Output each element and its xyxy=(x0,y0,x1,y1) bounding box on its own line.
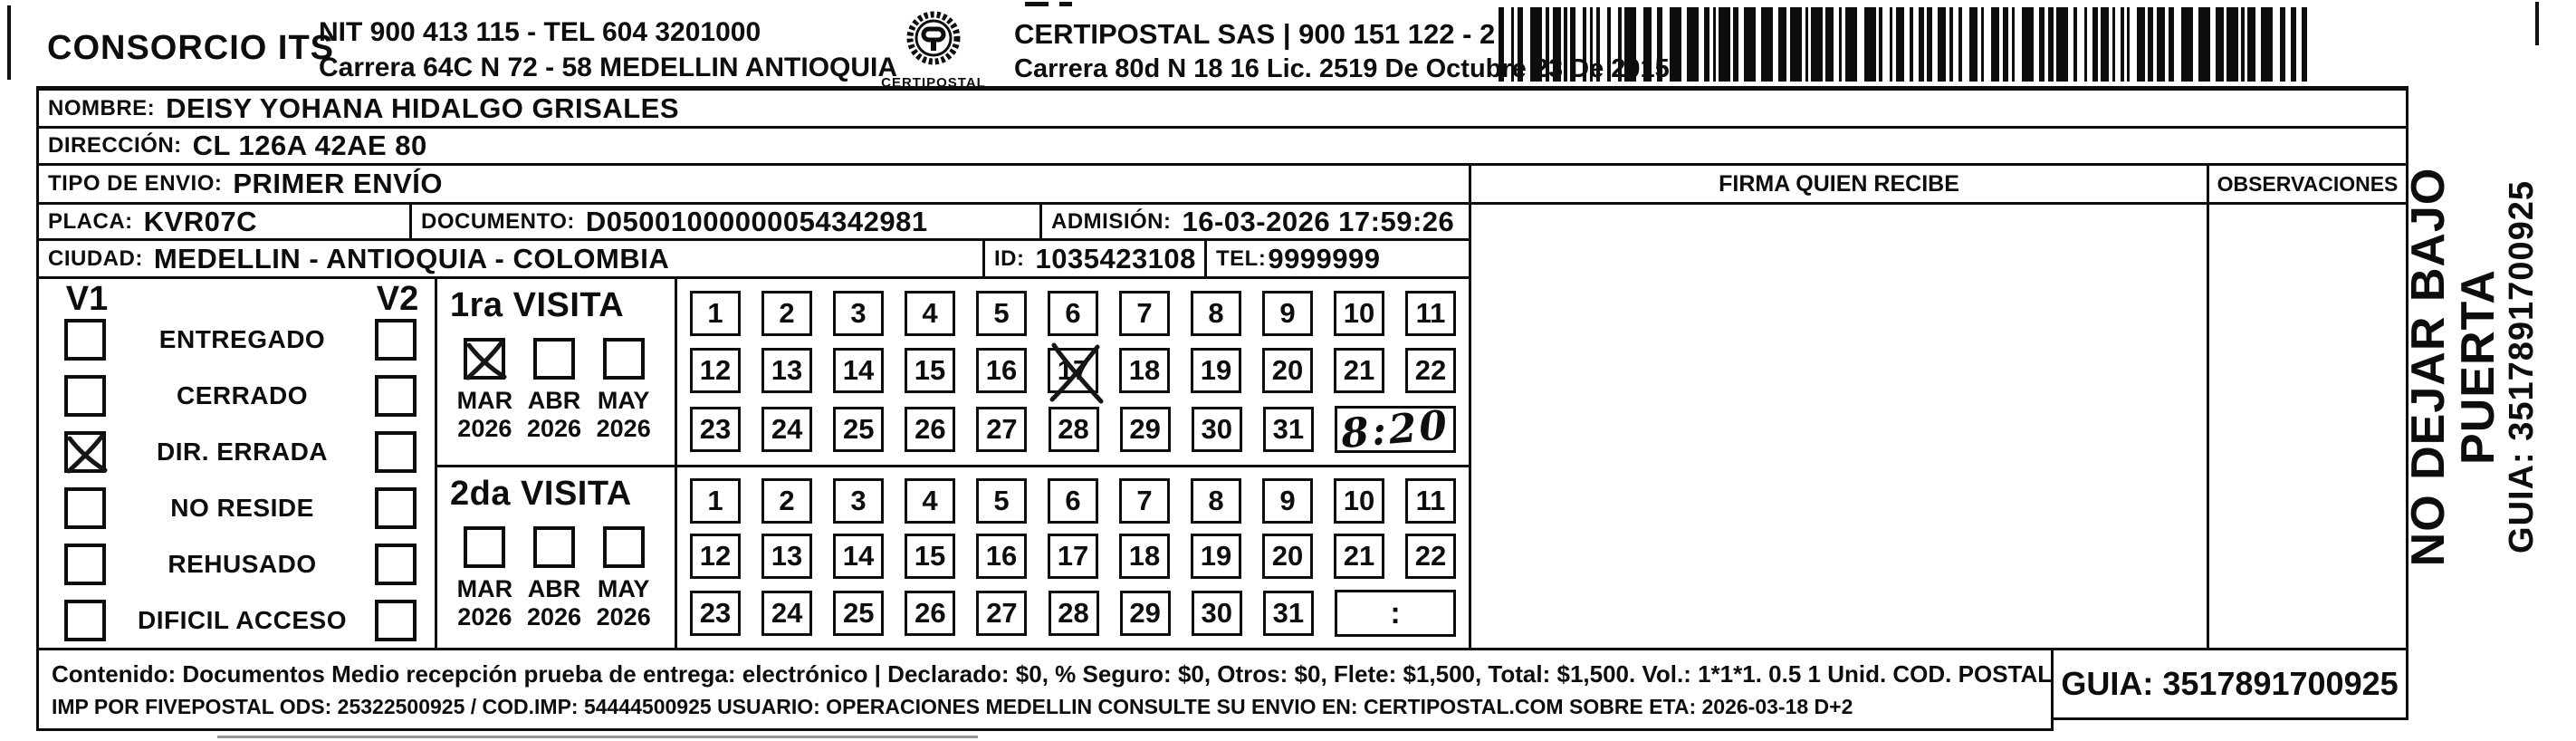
year-label: 2026 xyxy=(527,603,581,631)
day-cell-2-visit-2[interactable]: 2 xyxy=(761,478,812,524)
day-cell-30-visit-1[interactable]: 30 xyxy=(1192,407,1242,452)
status-label-no-reside: NO RESIDE xyxy=(110,494,375,523)
day-cell-14-visit-2[interactable]: 14 xyxy=(833,534,884,579)
certipostal-logo: CERTIPOSTAL xyxy=(876,9,991,98)
checkbox-v1-no-reside[interactable] xyxy=(64,487,106,529)
day-cell-28-visit-1[interactable]: 28 xyxy=(1049,407,1099,452)
checkbox-v1-dificil-acceso[interactable] xyxy=(64,600,106,641)
placa-label: PLACA: xyxy=(48,209,133,235)
direccion-value: CL 126A 42AE 80 xyxy=(193,130,427,162)
day-cell-9-visit-1[interactable]: 9 xyxy=(1262,291,1313,336)
nombre-value: DEISY YOHANA HIDALGO GRISALES xyxy=(166,92,679,125)
calendar-row: 1213141516171819202122 xyxy=(690,534,1456,579)
ciudad-label: CIUDAD: xyxy=(48,246,143,272)
status-row-entregado: ENTREGADO xyxy=(39,319,435,361)
tel-cell: TEL: 9999999 xyxy=(1204,238,1471,279)
barcode xyxy=(1499,7,2318,82)
documento-label: DOCUMENTO: xyxy=(421,209,575,235)
firma-signature-area[interactable] xyxy=(1469,202,2209,650)
direccion-label: DIRECCIÓN: xyxy=(48,133,182,159)
day-cell-29-visit-2[interactable]: 29 xyxy=(1120,591,1171,636)
status-label-dir-errada: DIR. ERRADA xyxy=(110,438,375,467)
day-cell-25-visit-2[interactable]: 25 xyxy=(833,591,884,636)
month-checkbox-abr-visit-2[interactable] xyxy=(533,526,575,568)
status-row-no-reside: NO RESIDE xyxy=(39,487,435,529)
side-note: NO DEJAR BAJO PUERTA GUIA: 3517891700925 xyxy=(2404,86,2531,648)
day-cell-25-visit-1[interactable]: 25 xyxy=(833,407,884,452)
status-row-rehusado: REHUSADO xyxy=(39,544,435,585)
day-cell-21-visit-1[interactable]: 21 xyxy=(1334,348,1384,393)
observaciones-area[interactable] xyxy=(2207,202,2408,650)
id-cell: ID: 1035423108 xyxy=(982,238,1207,279)
month-option-mar-2026: MAR2026 xyxy=(450,338,520,443)
day-cell-2-visit-1[interactable]: 2 xyxy=(761,291,812,336)
status-label-cerrado: CERRADO xyxy=(110,381,375,410)
ciudad-cell: CIUDAD: MEDELLIN - ANTIOQUIA - COLOMBIA xyxy=(36,238,985,279)
day-cell-21-visit-2[interactable]: 21 xyxy=(1334,534,1384,579)
checkbox-v1-dir-errada[interactable] xyxy=(64,431,106,473)
month-checkbox-mar-visit-2[interactable] xyxy=(464,526,505,568)
month-option-abr-2026: ABR2026 xyxy=(520,526,589,631)
day-cell-7-visit-2[interactable]: 7 xyxy=(1119,478,1170,524)
placa-cell: PLACA: KVR07C xyxy=(36,202,412,241)
time-box-visit-2[interactable]: : xyxy=(1335,590,1456,637)
day-cell-12-visit-2[interactable]: 12 xyxy=(690,534,741,579)
checkbox-v1-cerrado[interactable] xyxy=(64,375,106,417)
day-cell-22-visit-1[interactable]: 22 xyxy=(1405,348,1456,393)
tipo-envio-value: PRIMER ENVÍO xyxy=(233,168,443,200)
day-cell-15-visit-1[interactable]: 15 xyxy=(905,348,955,393)
calendar-row: 1234567891011 xyxy=(690,291,1456,336)
visit-2-block: 2da VISITA MAR2026ABR2026MAY2026 xyxy=(437,467,675,648)
day-cell-6-visit-1[interactable]: 6 xyxy=(1048,291,1098,336)
month-checkbox-may-visit-2[interactable] xyxy=(603,526,645,568)
tipo-envio-label: TIPO DE ENVIO: xyxy=(48,171,222,197)
delivery-body: V1 V2 ENTREGADOCERRADODIR. ERRADANO RESI… xyxy=(36,276,1471,650)
company-name: CONSORCIO ITS xyxy=(47,29,334,68)
day-cell-6-visit-2[interactable]: 6 xyxy=(1048,478,1098,524)
id-value: 1035423108 xyxy=(1036,243,1196,275)
month-checkbox-mar-visit-1[interactable] xyxy=(464,338,505,380)
scan-artifact xyxy=(2535,2,2539,45)
day-cell-18-visit-1[interactable]: 18 xyxy=(1119,348,1170,393)
observaciones-column-header: OBSERVACIONES xyxy=(2207,163,2408,205)
calendar-row: 2324252627282930318:20 xyxy=(690,406,1456,453)
calendar-row: 1213141516171819202122 xyxy=(690,348,1456,393)
status-label-dificil-acceso: DIFICIL ACCESO xyxy=(110,606,375,635)
scan-artifact xyxy=(1059,2,1072,6)
firma-column-header: FIRMA QUIEN RECIBE xyxy=(1469,163,2209,205)
day-cell-8-visit-2[interactable]: 8 xyxy=(1191,478,1241,524)
v2-header: V2 xyxy=(375,280,420,319)
scan-artifact xyxy=(7,5,11,80)
day-cell-7-visit-1[interactable]: 7 xyxy=(1119,291,1170,336)
admision-cell: ADMISIÓN: 16-03-2026 17:59:26 xyxy=(1039,202,1471,241)
day-cell-16-visit-2[interactable]: 16 xyxy=(976,534,1027,579)
footer-info: Contenido: Documentos Medio recepción pr… xyxy=(36,648,2054,731)
day-cell-13-visit-2[interactable]: 13 xyxy=(761,534,812,579)
day-cell-11-visit-2[interactable]: 11 xyxy=(1405,478,1456,524)
waybill-form: CONSORCIO ITS NIT 900 413 115 - TEL 604 … xyxy=(0,0,2576,741)
day-cell-27-visit-2[interactable]: 27 xyxy=(976,591,1027,636)
day-cell-19-visit-1[interactable]: 19 xyxy=(1191,348,1241,393)
scan-artifact xyxy=(1025,2,1049,6)
visit-2-title: 2da VISITA xyxy=(437,467,675,514)
day-cell-26-visit-2[interactable]: 26 xyxy=(905,591,955,636)
day-cell-18-visit-2[interactable]: 18 xyxy=(1119,534,1170,579)
status-block: V1 V2 ENTREGADOCERRADODIR. ERRADANO RESI… xyxy=(39,279,435,648)
day-cell-4-visit-1[interactable]: 4 xyxy=(905,291,955,336)
month-checkbox-abr-visit-1[interactable] xyxy=(533,338,575,380)
status-label-entregado: ENTREGADO xyxy=(110,325,375,354)
scan-artifact xyxy=(217,736,978,738)
day-cell-20-visit-1[interactable]: 20 xyxy=(1262,348,1313,393)
time-placeholder: : xyxy=(1390,596,1400,631)
day-cell-28-visit-2[interactable]: 28 xyxy=(1049,591,1099,636)
day-cell-15-visit-2[interactable]: 15 xyxy=(905,534,955,579)
documento-value: D05001000000054342981 xyxy=(586,206,928,238)
status-options: ENTREGADOCERRADODIR. ERRADANO RESIDEREHU… xyxy=(39,319,435,641)
footer-import-line: IMP POR FIVEPOSTAL ODS: 25322500925 / CO… xyxy=(52,692,2038,722)
day-cell-1-visit-1[interactable]: 1 xyxy=(690,291,741,336)
day-cell-31-visit-2[interactable]: 31 xyxy=(1263,591,1314,636)
year-label: 2026 xyxy=(457,415,512,443)
visit-1-title: 1ra VISITA xyxy=(437,279,675,325)
day-cell-29-visit-1[interactable]: 29 xyxy=(1120,407,1171,452)
day-cell-24-visit-2[interactable]: 24 xyxy=(761,591,812,636)
visit-1-months: MAR2026ABR2026MAY2026 xyxy=(437,325,675,443)
month-label: MAY xyxy=(598,387,650,415)
direccion-row: DIRECCIÓN: CL 126A 42AE 80 xyxy=(36,126,2408,166)
day-cell-8-visit-1[interactable]: 8 xyxy=(1191,291,1241,336)
day-cell-20-visit-2[interactable]: 20 xyxy=(1262,534,1313,579)
day-cell-19-visit-2[interactable]: 19 xyxy=(1191,534,1241,579)
status-label-rehusado: REHUSADO xyxy=(110,550,375,579)
year-label: 2026 xyxy=(527,415,581,443)
company-nit-line: NIT 900 413 115 - TEL 604 3201000 xyxy=(319,14,897,50)
day-cell-14-visit-1[interactable]: 14 xyxy=(833,348,884,393)
day-cell-5-visit-2[interactable]: 5 xyxy=(976,478,1027,524)
calendar-row: 1234567891011 xyxy=(690,478,1456,524)
day-cell-3-visit-2[interactable]: 3 xyxy=(833,478,884,524)
visit-1-block: 1ra VISITA MAR2026ABR2026MAY2026 xyxy=(437,279,675,465)
visit-2-calendar: 1234567891011121314151617181920212223242… xyxy=(677,467,1469,648)
visit-1-calendar: 1234567891011121314151617181920212223242… xyxy=(677,279,1469,465)
day-cell-17-visit-2[interactable]: 17 xyxy=(1048,534,1098,579)
status-row-dificil-acceso: DIFICIL ACCESO xyxy=(39,600,435,641)
ciudad-value: MEDELLIN - ANTIOQUIA - COLOMBIA xyxy=(154,243,669,275)
day-cell-5-visit-1[interactable]: 5 xyxy=(976,291,1027,336)
checkbox-v2-no-reside[interactable] xyxy=(375,487,417,529)
month-option-may-2026: MAY2026 xyxy=(589,338,658,443)
day-cell-4-visit-2[interactable]: 4 xyxy=(905,478,955,524)
side-note-guia: GUIA: 3517891700925 xyxy=(2503,86,2542,648)
tel-value: 9999999 xyxy=(1268,243,1380,275)
side-note-warning: NO DEJAR BAJO PUERTA xyxy=(2404,86,2503,648)
status-row-cerrado: CERRADO xyxy=(39,375,435,417)
handwritten-time: 8:20 xyxy=(1339,402,1451,457)
day-cell-27-visit-1[interactable]: 27 xyxy=(976,407,1027,452)
nombre-row: NOMBRE: DEISY YOHANA HIDALGO GRISALES xyxy=(36,86,2408,129)
month-label: MAR xyxy=(457,387,513,415)
year-label: 2026 xyxy=(597,415,651,443)
checkbox-v1-rehusado[interactable] xyxy=(64,544,106,585)
checkbox-v1-entregado[interactable] xyxy=(64,319,106,361)
day-cell-31-visit-1[interactable]: 31 xyxy=(1263,407,1314,452)
day-cell-9-visit-2[interactable]: 9 xyxy=(1262,478,1313,524)
month-option-may-2026: MAY2026 xyxy=(589,526,658,631)
day-cell-3-visit-1[interactable]: 3 xyxy=(833,291,884,336)
visit-2-months: MAR2026ABR2026MAY2026 xyxy=(437,514,675,631)
company-info: NIT 900 413 115 - TEL 604 3201000 Carrer… xyxy=(319,14,897,85)
calendar-row: 232425262728293031: xyxy=(690,590,1456,637)
day-cell-23-visit-1[interactable]: 23 xyxy=(690,407,741,452)
checkbox-v2-entregado[interactable] xyxy=(375,319,417,361)
checkbox-v2-rehusado[interactable] xyxy=(375,544,417,585)
certipostal-logo-icon xyxy=(876,9,991,71)
admision-label: ADMISIÓN: xyxy=(1051,209,1172,235)
day-cell-16-visit-1[interactable]: 16 xyxy=(976,348,1027,393)
documento-cell: DOCUMENTO: D05001000000054342981 xyxy=(409,202,1042,241)
day-cell-10-visit-2[interactable]: 10 xyxy=(1334,478,1384,524)
day-cell-11-visit-1[interactable]: 11 xyxy=(1405,291,1456,336)
day-cell-13-visit-1[interactable]: 13 xyxy=(761,348,812,393)
admision-value: 16-03-2026 17:59:26 xyxy=(1183,206,1455,238)
year-label: 2026 xyxy=(597,603,651,631)
guia-number-box: GUIA: 3517891700925 xyxy=(2051,648,2408,720)
year-label: 2026 xyxy=(457,603,512,631)
month-checkbox-may-visit-1[interactable] xyxy=(603,338,645,380)
nombre-label: NOMBRE: xyxy=(48,96,155,121)
v1-header: V1 xyxy=(64,280,110,319)
day-cell-1-visit-2[interactable]: 1 xyxy=(690,478,741,524)
day-cell-22-visit-2[interactable]: 22 xyxy=(1405,534,1456,579)
day-cell-10-visit-1[interactable]: 10 xyxy=(1334,291,1384,336)
id-label: ID: xyxy=(994,246,1025,272)
status-row-dir-errada: DIR. ERRADA xyxy=(39,431,435,473)
day-cell-26-visit-1[interactable]: 26 xyxy=(905,407,955,452)
checkbox-v2-dir-errada[interactable] xyxy=(375,431,417,473)
tipo-envio-cell: TIPO DE ENVIO: PRIMER ENVÍO xyxy=(36,163,1471,205)
day-cell-12-visit-1[interactable]: 12 xyxy=(690,348,741,393)
time-box-visit-1[interactable]: 8:20 xyxy=(1335,406,1456,453)
month-option-abr-2026: ABR2026 xyxy=(520,338,589,443)
placa-value: KVR07C xyxy=(144,206,257,238)
month-option-mar-2026: MAR2026 xyxy=(450,526,520,631)
checkbox-v2-cerrado[interactable] xyxy=(375,375,417,417)
month-label: MAY xyxy=(598,575,650,603)
day-cell-30-visit-2[interactable]: 30 xyxy=(1192,591,1242,636)
month-label: MAR xyxy=(457,575,513,603)
day-cell-24-visit-1[interactable]: 24 xyxy=(761,407,812,452)
day-cell-23-visit-2[interactable]: 23 xyxy=(690,591,741,636)
tel-label: TEL: xyxy=(1216,246,1266,272)
footer-content-line: Contenido: Documentos Medio recepción pr… xyxy=(52,658,2038,692)
checkbox-v2-dificil-acceso[interactable] xyxy=(375,600,417,641)
month-label: ABR xyxy=(528,575,581,603)
day-cell-17-visit-1[interactable]: 17 xyxy=(1048,348,1098,393)
company-address-line: Carrera 64C N 72 - 58 MEDELLIN ANTIOQUIA xyxy=(319,50,897,85)
month-label: ABR xyxy=(528,387,581,415)
